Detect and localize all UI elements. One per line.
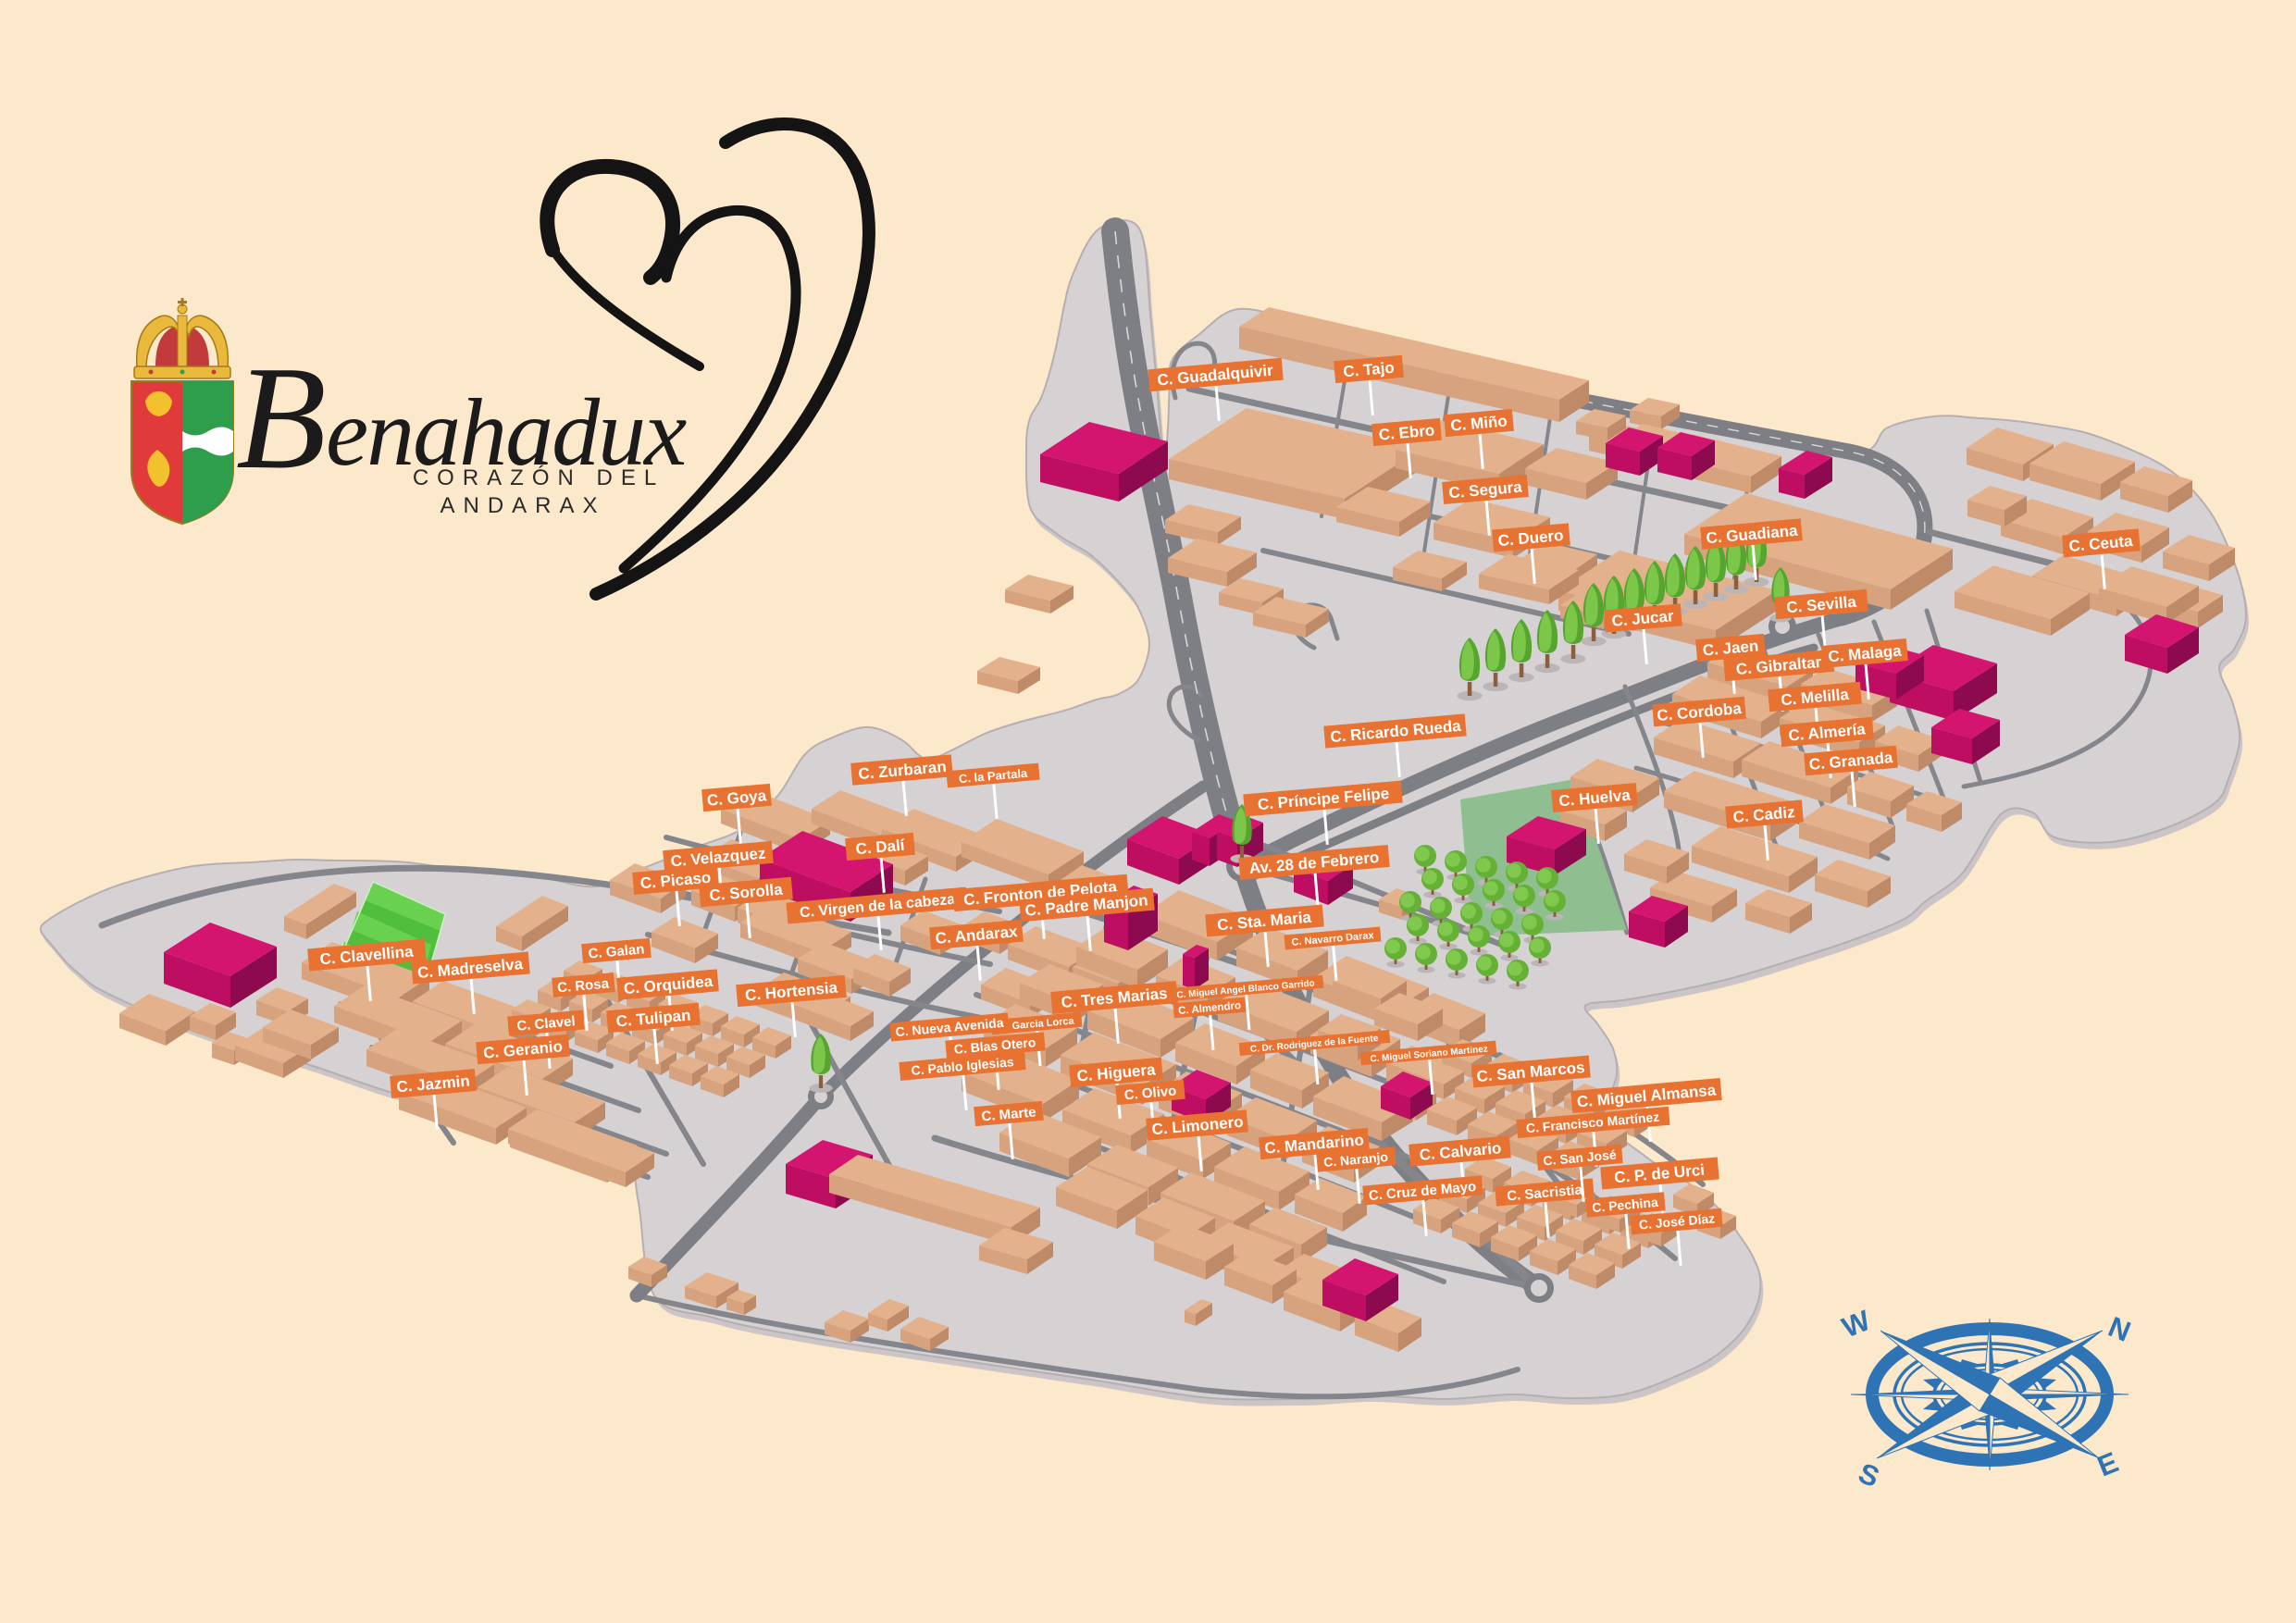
svg-text:B: B [236, 335, 324, 500]
svg-text:CORAZÓN DEL: CORAZÓN DEL [413, 465, 664, 490]
svg-text:ANDARAX: ANDARAX [440, 493, 605, 518]
